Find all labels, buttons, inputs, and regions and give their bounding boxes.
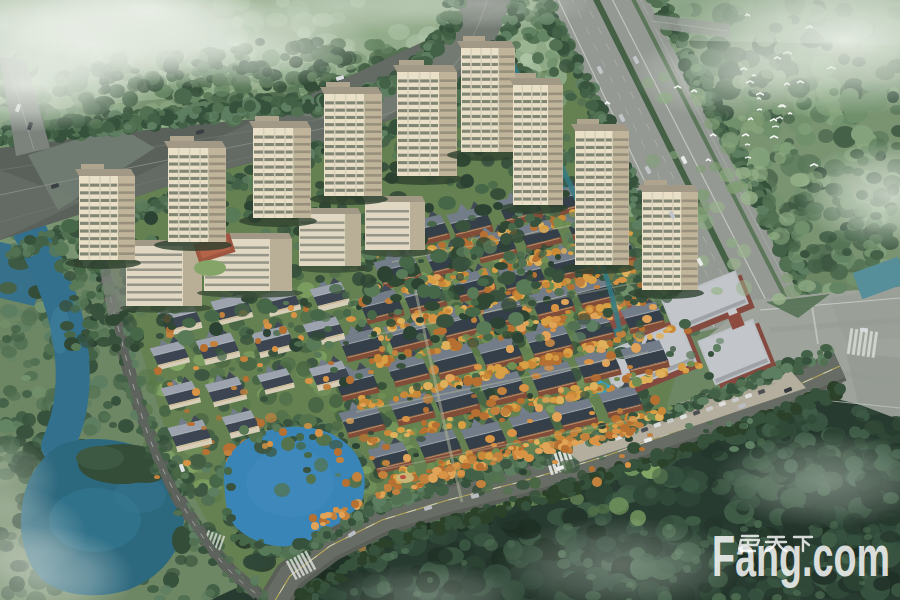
svg-text:Fang.com: Fang.com — [712, 524, 890, 588]
